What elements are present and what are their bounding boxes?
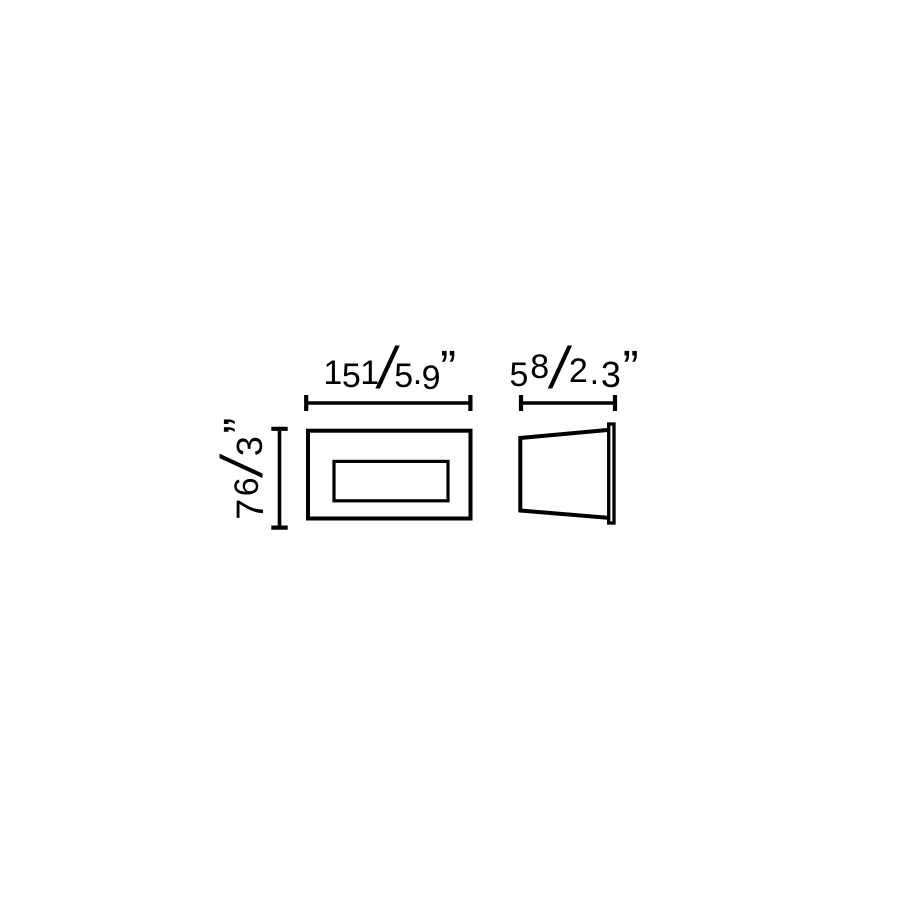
svg-text:151/5.9”: 151/5.9”	[323, 336, 455, 401]
svg-text:76/3”: 76/3”	[210, 415, 275, 520]
svg-text:58/2.3”: 58/2.3”	[510, 336, 641, 401]
